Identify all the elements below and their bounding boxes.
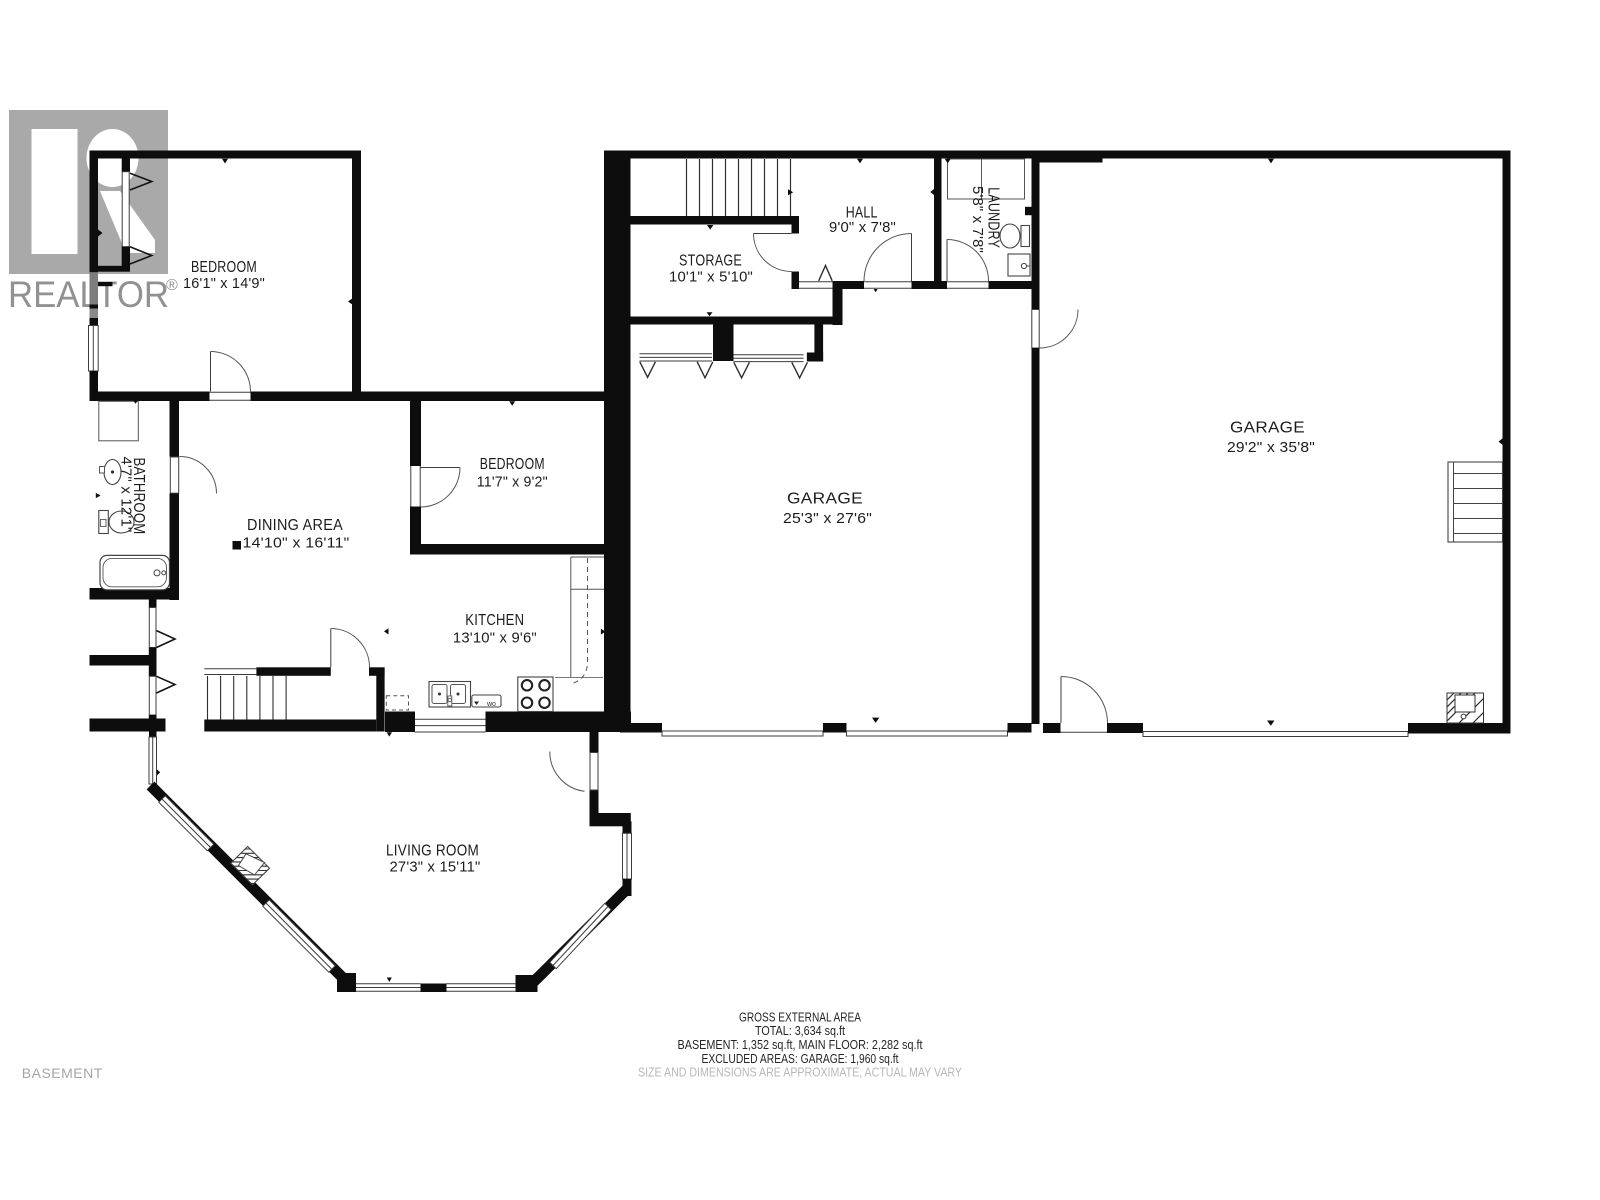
svg-text:BASEMENT: BASEMENT — [22, 1065, 103, 1081]
svg-text:29'2" x 35'8": 29'2" x 35'8" — [1227, 439, 1315, 456]
svg-text:10'1" x 5'10": 10'1" x 5'10" — [669, 268, 753, 285]
svg-text:13'10" x 9'6": 13'10" x 9'6" — [453, 630, 537, 647]
svg-text:SIZE AND DIMENSIONS ARE APPROX: SIZE AND DIMENSIONS ARE APPROXIMATE, ACT… — [638, 1065, 962, 1080]
svg-text:KITCHEN: KITCHEN — [465, 612, 524, 629]
svg-text:STORAGE: STORAGE — [679, 253, 742, 270]
svg-text:BEDROOM: BEDROOM — [191, 259, 257, 276]
svg-text:27'3" x 15'11": 27'3" x 15'11" — [390, 859, 481, 876]
svg-text:BASEMENT: 1,352 sq.ft, MAIN FL: BASEMENT: 1,352 sq.ft, MAIN FLOOR: 2,282… — [678, 1037, 923, 1052]
svg-text:BEDROOM: BEDROOM — [480, 456, 545, 473]
svg-text:GARAGE: GARAGE — [1230, 420, 1305, 437]
svg-text:DINING AREA: DINING AREA — [247, 517, 343, 534]
svg-text:®: ® — [166, 277, 178, 294]
svg-text:wo: wo — [486, 701, 496, 708]
svg-text:4'7" x 12'1": 4'7" x 12'1" — [118, 457, 135, 533]
svg-text:GARAGE: GARAGE — [787, 491, 863, 508]
svg-text:REALTOR: REALTOR — [8, 274, 169, 315]
svg-text:LIVING ROOM: LIVING ROOM — [386, 843, 479, 860]
svg-text:11'7" x 9'2": 11'7" x 9'2" — [477, 474, 548, 491]
svg-text:16'1" x 14'9": 16'1" x 14'9" — [183, 275, 265, 292]
svg-text:TOTAL: 3,634 sq.ft: TOTAL: 3,634 sq.ft — [755, 1023, 845, 1038]
svg-text:EXCLUDED AREAS: GARAGE: 1,960: EXCLUDED AREAS: GARAGE: 1,960 sq.ft — [702, 1051, 899, 1066]
svg-text:25'3" x 27'6": 25'3" x 27'6" — [783, 510, 872, 527]
svg-text:9'0" x 7'8": 9'0" x 7'8" — [829, 219, 896, 236]
svg-text:5'8" x 7'8": 5'8" x 7'8" — [969, 186, 986, 253]
svg-text:GROSS EXTERNAL AREA: GROSS EXTERNAL AREA — [739, 1009, 861, 1024]
svg-text:14'10" x 16'11": 14'10" x 16'11" — [243, 535, 350, 552]
